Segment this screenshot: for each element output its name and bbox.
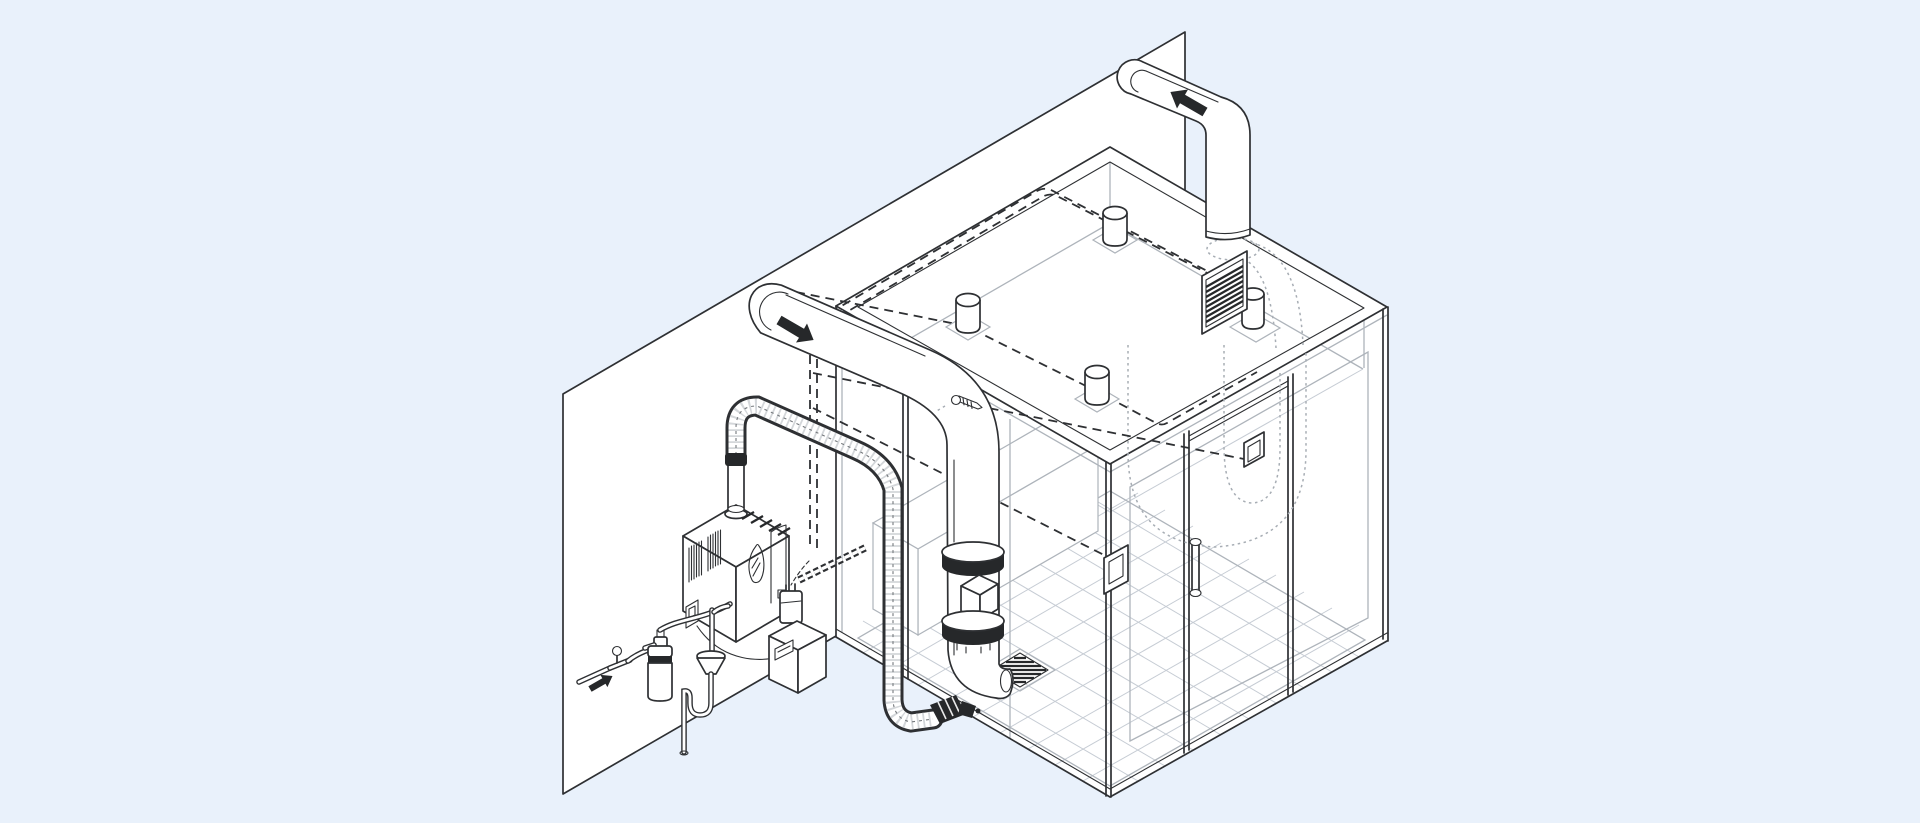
diagram-stage [0,0,1920,823]
duct-flange-upper [942,542,1004,576]
steam-room-installation-diagram [0,0,1920,823]
control-module [769,621,826,693]
